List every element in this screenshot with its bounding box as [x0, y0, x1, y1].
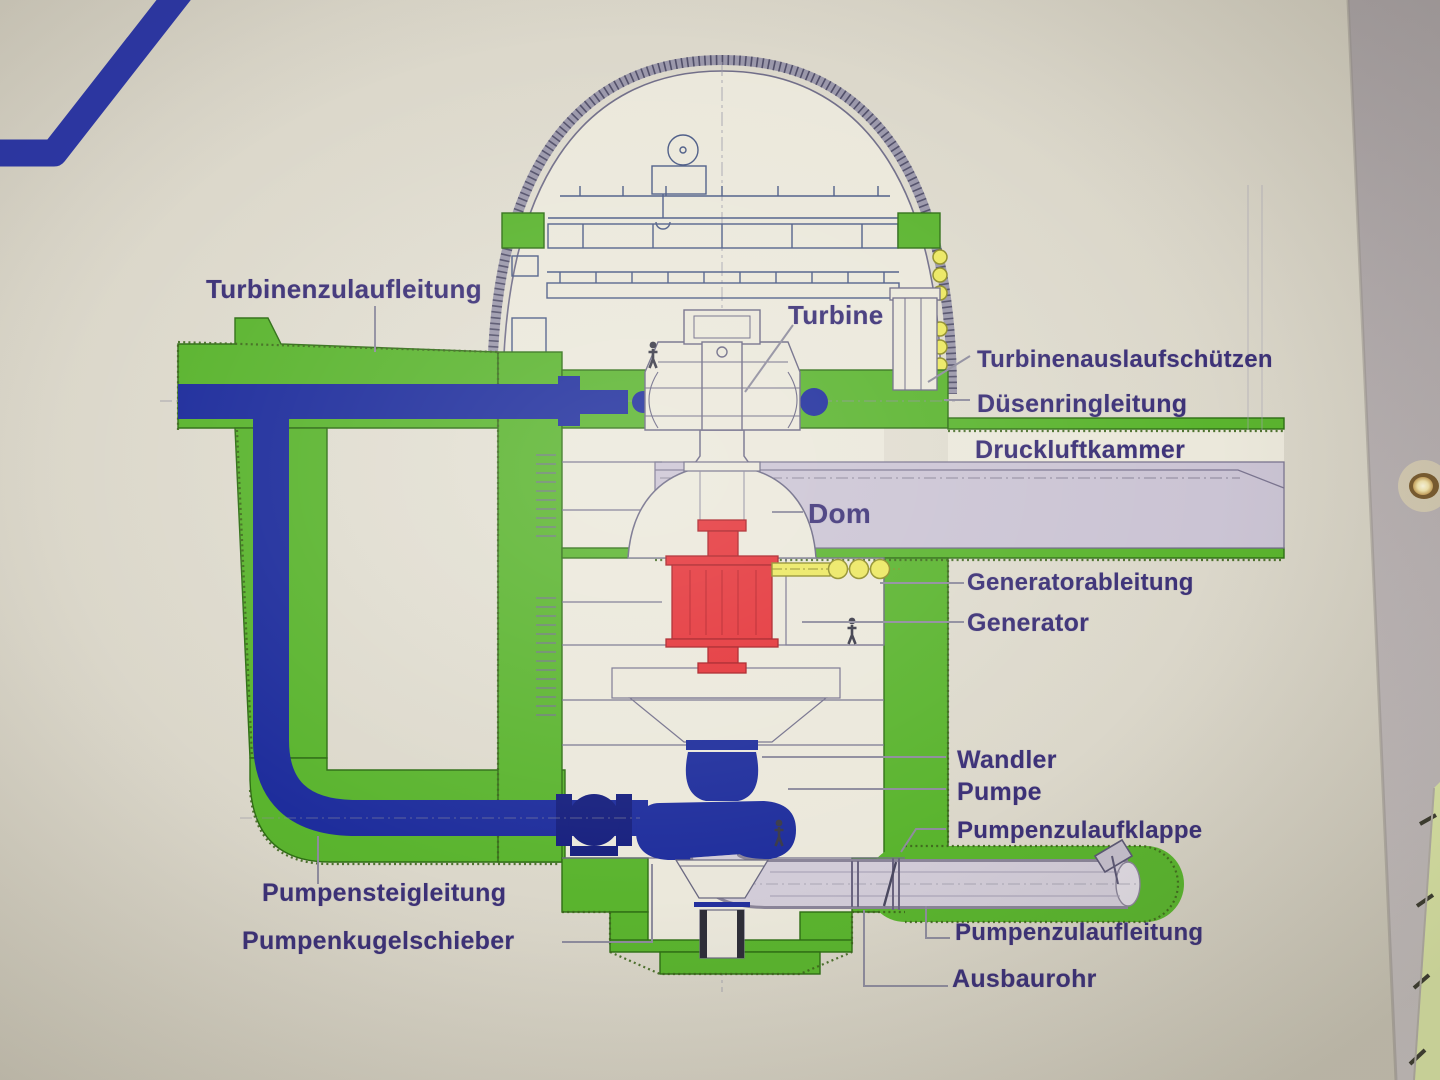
- label-dom: Dom: [808, 499, 871, 528]
- generator-cable-duct: [772, 560, 900, 579]
- outlet-gate-drawing: [890, 288, 940, 390]
- crane-corbel-left: [502, 213, 544, 248]
- label-pumpensteigleitung: Pumpensteigleitung: [262, 880, 506, 906]
- label-druckluftkammer: Druckluftkammer: [975, 437, 1185, 463]
- label-generatorableitung: Generatorableitung: [967, 570, 1194, 595]
- diagram-artwork: [0, 0, 1440, 1080]
- label-generator: Generator: [967, 610, 1089, 636]
- label-ausbaurohr: Ausbaurohr: [952, 966, 1097, 992]
- photo-of-diagram-wall: Turbinenzulaufleitung Turbine Turbinenau…: [0, 0, 1440, 1080]
- label-turbinenzulaufleitung: Turbinenzulaufleitung: [206, 276, 482, 303]
- label-pumpenzulaufklappe: Pumpenzulaufklappe: [957, 818, 1202, 843]
- label-duesenringleitung: Düsenringleitung: [977, 391, 1187, 417]
- label-turbinenauslaufschuetzen: Turbinenauslaufschützen: [977, 347, 1273, 372]
- label-pumpenkugelschieber: Pumpenkugelschieber: [242, 928, 514, 954]
- label-wandler: Wandler: [957, 747, 1057, 773]
- label-pumpe: Pumpe: [957, 779, 1042, 805]
- crane-corbel-right: [898, 213, 940, 248]
- label-pumpenzulaufleitung: Pumpenzulaufleitung: [955, 920, 1203, 945]
- label-turbine: Turbine: [788, 302, 884, 329]
